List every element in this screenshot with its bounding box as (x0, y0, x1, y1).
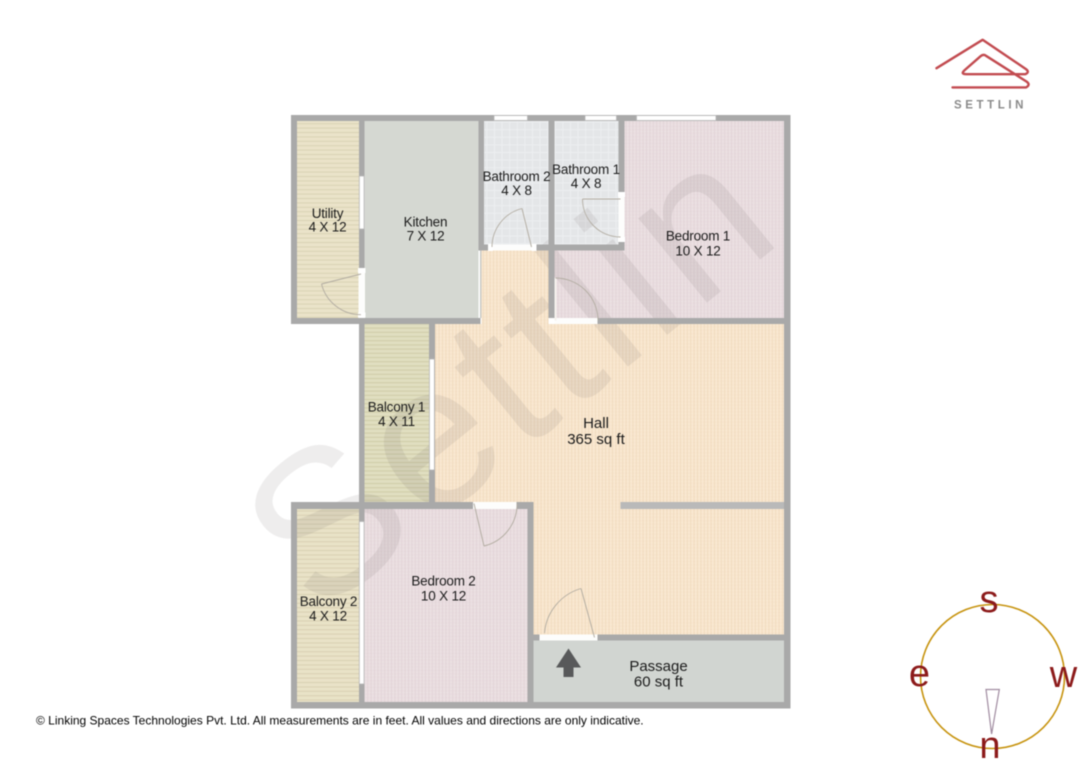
svg-text:7 X 12: 7 X 12 (407, 228, 445, 243)
svg-text:Bedroom 2: Bedroom 2 (411, 573, 475, 588)
svg-text:60 sq ft: 60 sq ft (634, 673, 684, 690)
svg-text:4 X 11: 4 X 11 (378, 414, 415, 429)
svg-text:Hall: Hall (583, 415, 609, 432)
svg-text:s: s (980, 579, 999, 621)
svg-text:10 X 12: 10 X 12 (421, 588, 466, 603)
svg-text:10 X 12: 10 X 12 (675, 243, 720, 258)
svg-text:Passage: Passage (629, 658, 687, 675)
svg-text:Bedroom 1: Bedroom 1 (666, 228, 730, 243)
svg-text:4 X 12: 4 X 12 (309, 608, 347, 623)
svg-text:w: w (1049, 654, 1078, 696)
svg-text:SETTLIN: SETTLIN (954, 100, 1027, 112)
svg-text:Bathroom 1: Bathroom 1 (552, 162, 620, 177)
svg-text:n: n (979, 725, 1000, 764)
svg-text:365 sq ft: 365 sq ft (567, 431, 625, 448)
svg-text:Bathroom 2: Bathroom 2 (483, 169, 551, 184)
svg-text:Kitchen: Kitchen (404, 214, 448, 229)
svg-text:4 X 8: 4 X 8 (501, 183, 532, 198)
svg-text:4 X 12: 4 X 12 (309, 219, 347, 234)
svg-text:Balcony 1: Balcony 1 (368, 399, 426, 414)
svg-text:e: e (909, 653, 930, 695)
svg-text:4 X 8: 4 X 8 (571, 176, 602, 191)
svg-text:© Linking Spaces Technologies: © Linking Spaces Technologies Pvt. Ltd. … (36, 714, 644, 728)
svg-text:Balcony 2: Balcony 2 (300, 594, 358, 609)
